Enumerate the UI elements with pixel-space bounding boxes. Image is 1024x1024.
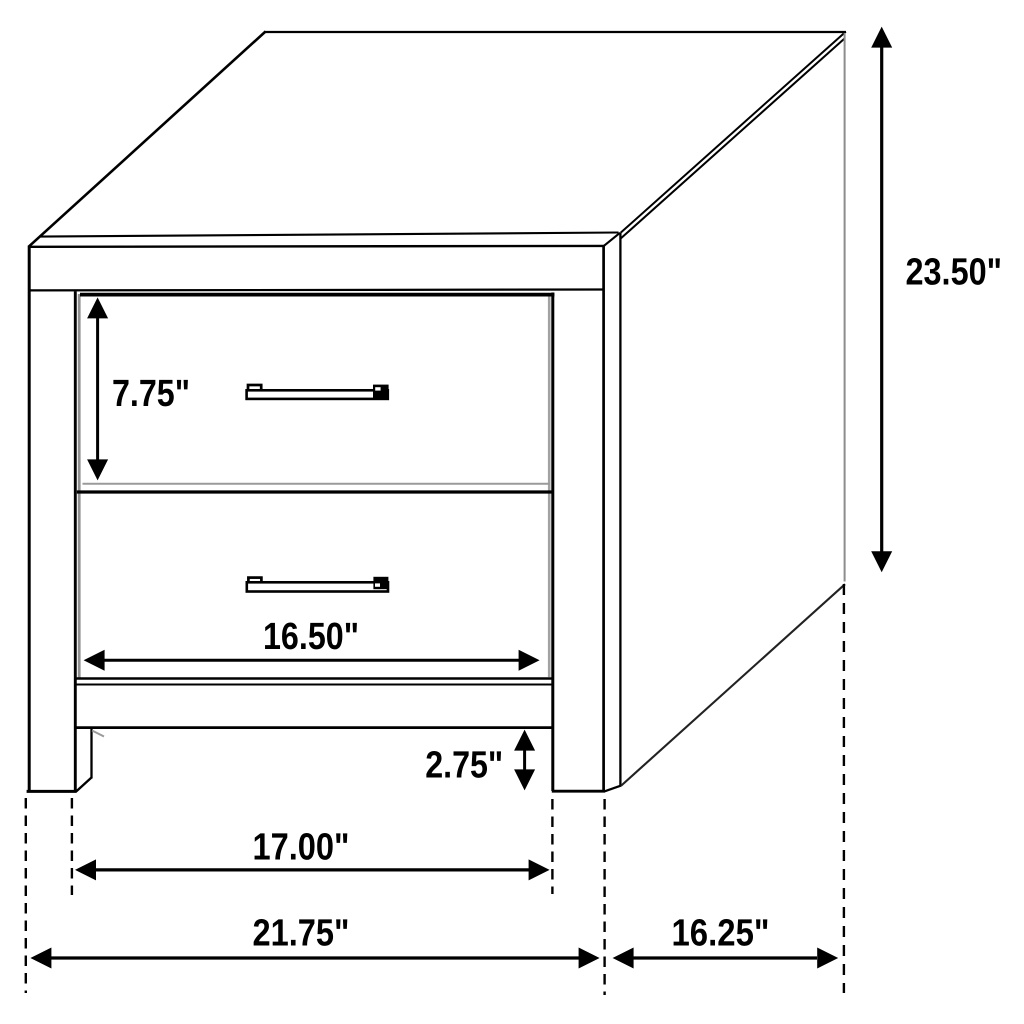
svg-text:23.50": 23.50" bbox=[906, 252, 1003, 294]
svg-text:16.25": 16.25" bbox=[672, 913, 770, 955]
svg-text:17.00": 17.00" bbox=[253, 827, 350, 869]
svg-text:2.75": 2.75" bbox=[425, 745, 503, 787]
svg-text:21.75": 21.75" bbox=[253, 913, 350, 955]
svg-text:7.75": 7.75" bbox=[112, 373, 190, 415]
svg-text:16.50": 16.50" bbox=[263, 616, 359, 658]
